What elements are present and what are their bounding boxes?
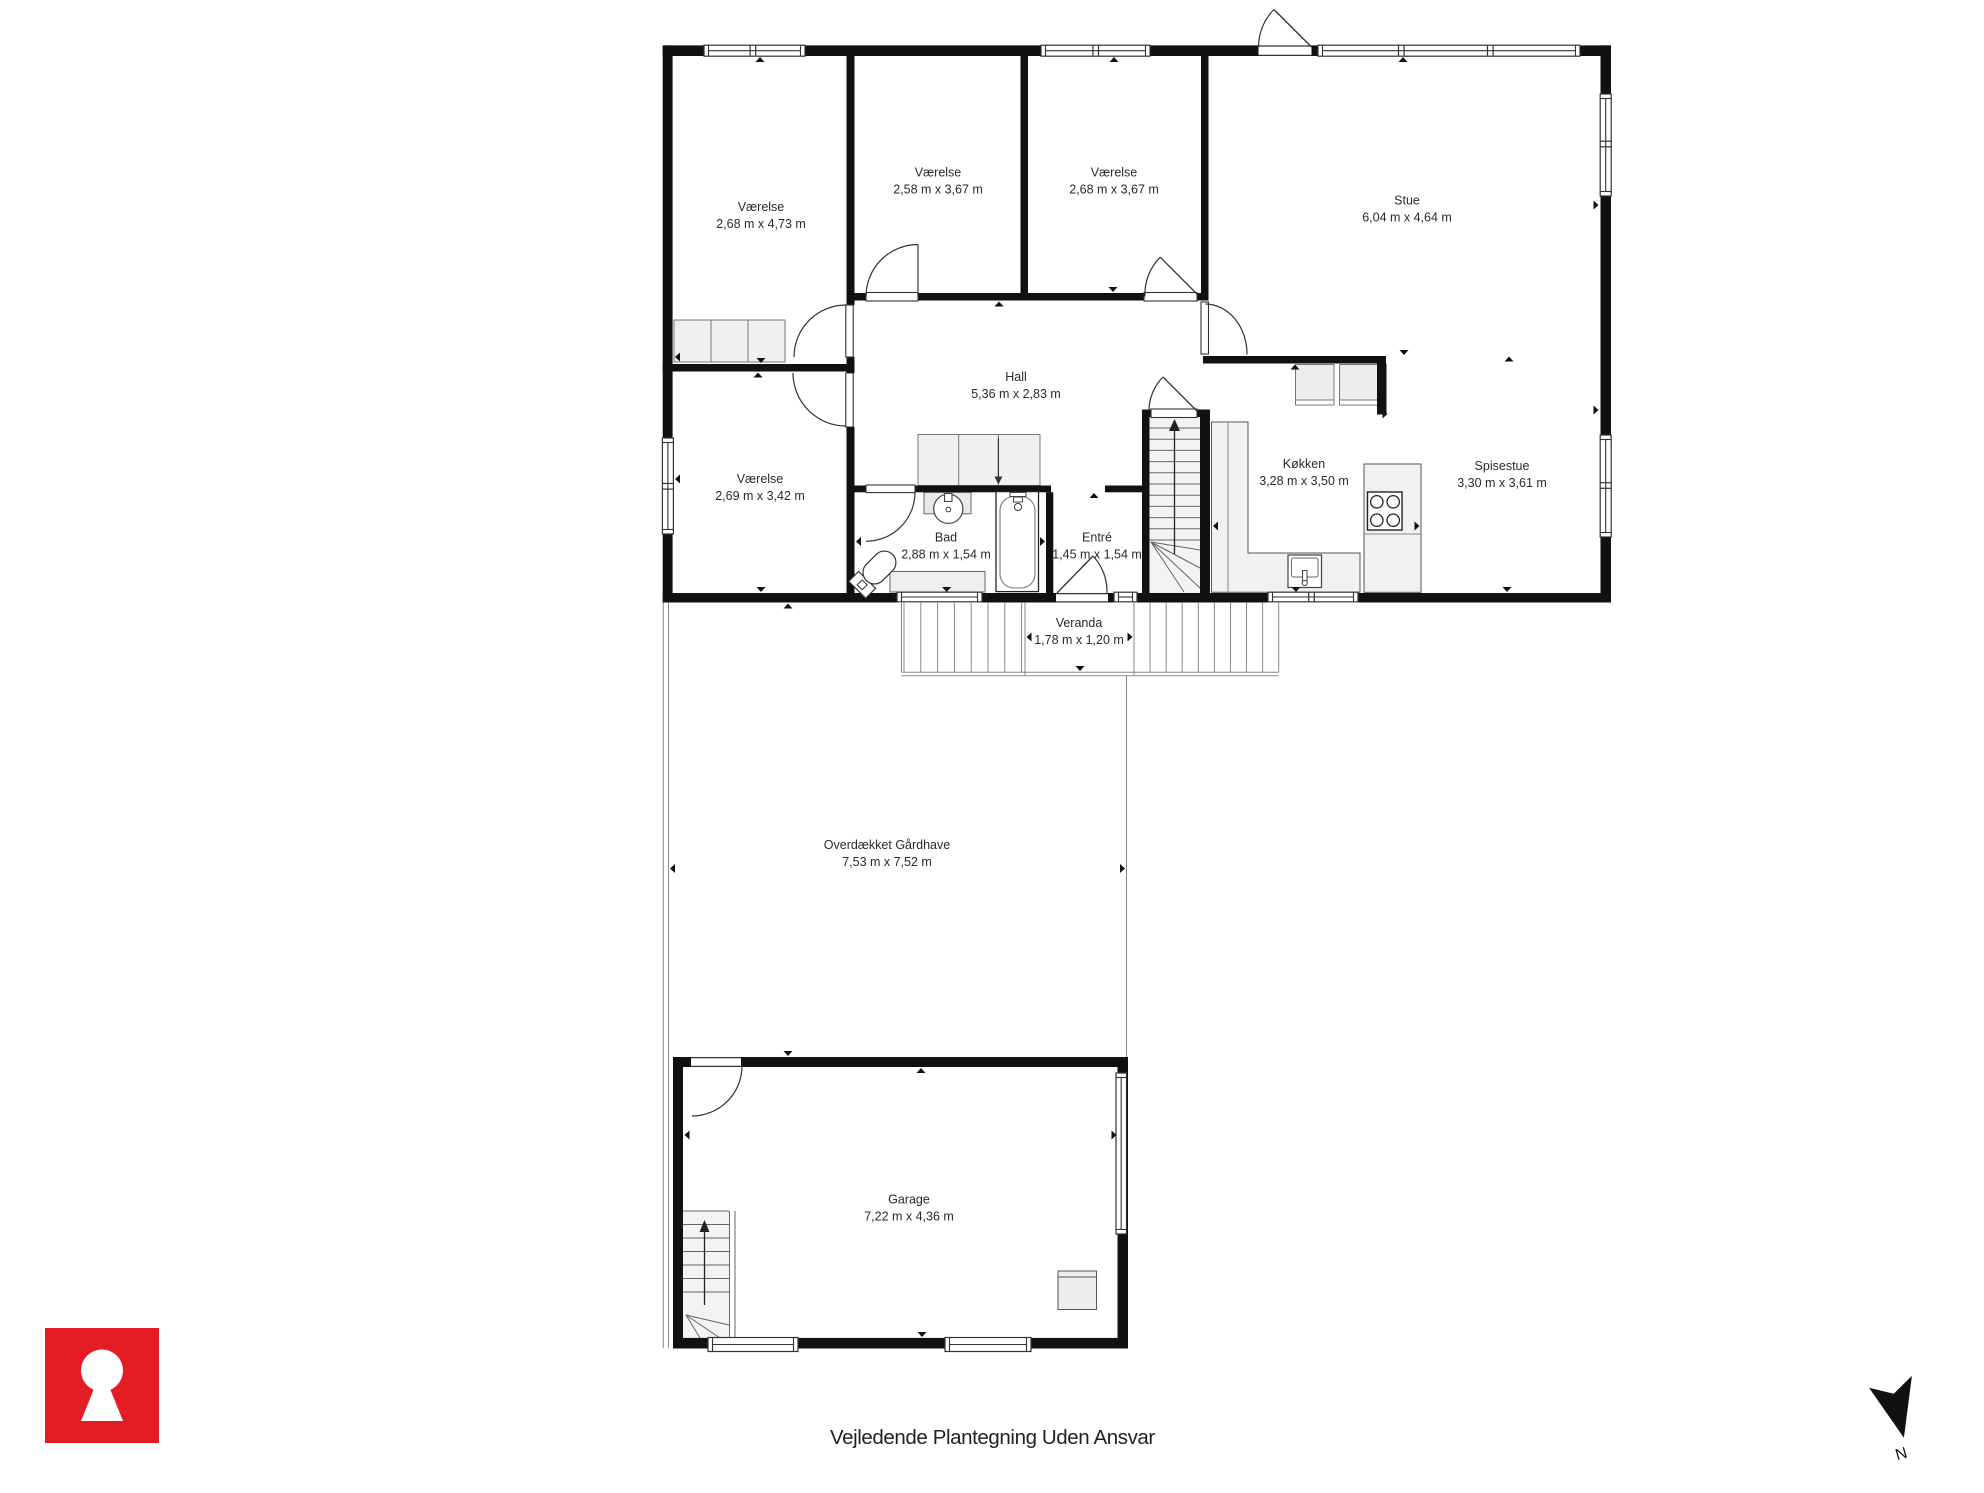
svg-text:Entré: Entré [1082,531,1112,545]
svg-text:Værelse: Værelse [738,200,785,214]
svg-text:Hall: Hall [1005,370,1027,384]
svg-text:2,68 m x 4,73 m: 2,68 m x 4,73 m [716,217,806,231]
svg-text:1,45 m x 1,54 m: 1,45 m x 1,54 m [1052,548,1142,562]
svg-text:Stue: Stue [1394,193,1420,207]
svg-text:2,69 m x 3,42 m: 2,69 m x 3,42 m [715,489,805,503]
svg-text:7,22 m x 4,36 m: 7,22 m x 4,36 m [864,1210,954,1224]
svg-text:Vejledende Plantegning Uden An: Vejledende Plantegning Uden Ansvar [830,1426,1155,1449]
svg-text:3,30 m x 3,61 m: 3,30 m x 3,61 m [1457,476,1547,490]
svg-text:6,04 m x 4,64 m: 6,04 m x 4,64 m [1362,210,1452,224]
svg-text:Overdækket Gårdhave: Overdækket Gårdhave [824,838,950,852]
svg-text:Værelse: Værelse [1091,166,1138,180]
svg-text:Værelse: Værelse [915,166,962,180]
svg-text:2,68 m x 3,67 m: 2,68 m x 3,67 m [1069,183,1159,197]
svg-text:Bad: Bad [935,531,957,545]
svg-text:7,53 m x 7,52 m: 7,53 m x 7,52 m [842,855,932,869]
svg-text:Køkken: Køkken [1283,457,1325,471]
svg-text:Garage: Garage [888,1193,930,1207]
svg-text:1,78 m x 1,20 m: 1,78 m x 1,20 m [1034,633,1124,647]
svg-text:2,58 m x 3,67 m: 2,58 m x 3,67 m [893,183,983,197]
svg-text:3,28 m x 3,50 m: 3,28 m x 3,50 m [1259,474,1349,488]
svg-text:5,36 m x 2,83 m: 5,36 m x 2,83 m [971,387,1061,401]
svg-text:Veranda: Veranda [1056,616,1103,630]
svg-text:Spisestue: Spisestue [1475,459,1530,473]
svg-text:2,88 m x 1,54 m: 2,88 m x 1,54 m [901,548,991,562]
svg-text:Værelse: Værelse [737,472,784,486]
